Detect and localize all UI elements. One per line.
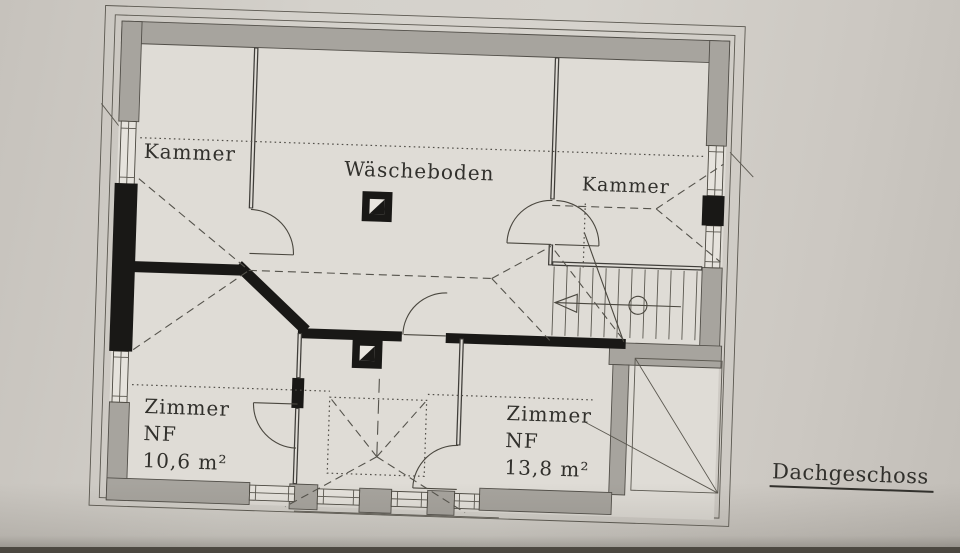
window-bottom-4	[454, 493, 479, 509]
window-bottom-1	[249, 485, 294, 501]
room-label-zimmer-left: Zimmer NF 10,6 m²	[142, 393, 230, 477]
floor-plan: Kammer Wäscheboden Kammer Zimmer NF 10,6…	[84, 3, 763, 537]
window-bottom-2	[317, 489, 359, 505]
floorplan-photo: Kammer Wäscheboden Kammer Zimmer NF 10,6…	[0, 0, 960, 553]
window-right-upper	[707, 146, 724, 196]
zimmer-right-area: 13,8 m²	[504, 454, 590, 484]
room-label-zimmer-right: Zimmer NF 13,8 m²	[504, 400, 592, 484]
window-right-lower	[705, 226, 721, 268]
zimmer-right-name: Zimmer	[506, 400, 592, 430]
zimmer-left-nf: NF	[143, 420, 229, 450]
chimney-icon-lower	[352, 338, 383, 369]
window-bottom-3	[391, 491, 427, 507]
room-label-waescheboden: Wäscheboden	[344, 157, 495, 186]
plan-title: Dachgeschoss	[770, 459, 935, 493]
zimmer-left-area: 10,6 m²	[142, 447, 228, 477]
window-left-upper	[119, 121, 136, 184]
photo-edge	[0, 547, 960, 553]
window-left-lower	[112, 351, 129, 402]
zimmer-left-name: Zimmer	[144, 393, 230, 423]
chimney-icon-waescheboden	[362, 191, 393, 222]
zimmer-right-nf: NF	[505, 427, 591, 457]
room-label-kammer-right: Kammer	[582, 173, 671, 198]
room-label-kammer-left: Kammer	[143, 139, 236, 166]
